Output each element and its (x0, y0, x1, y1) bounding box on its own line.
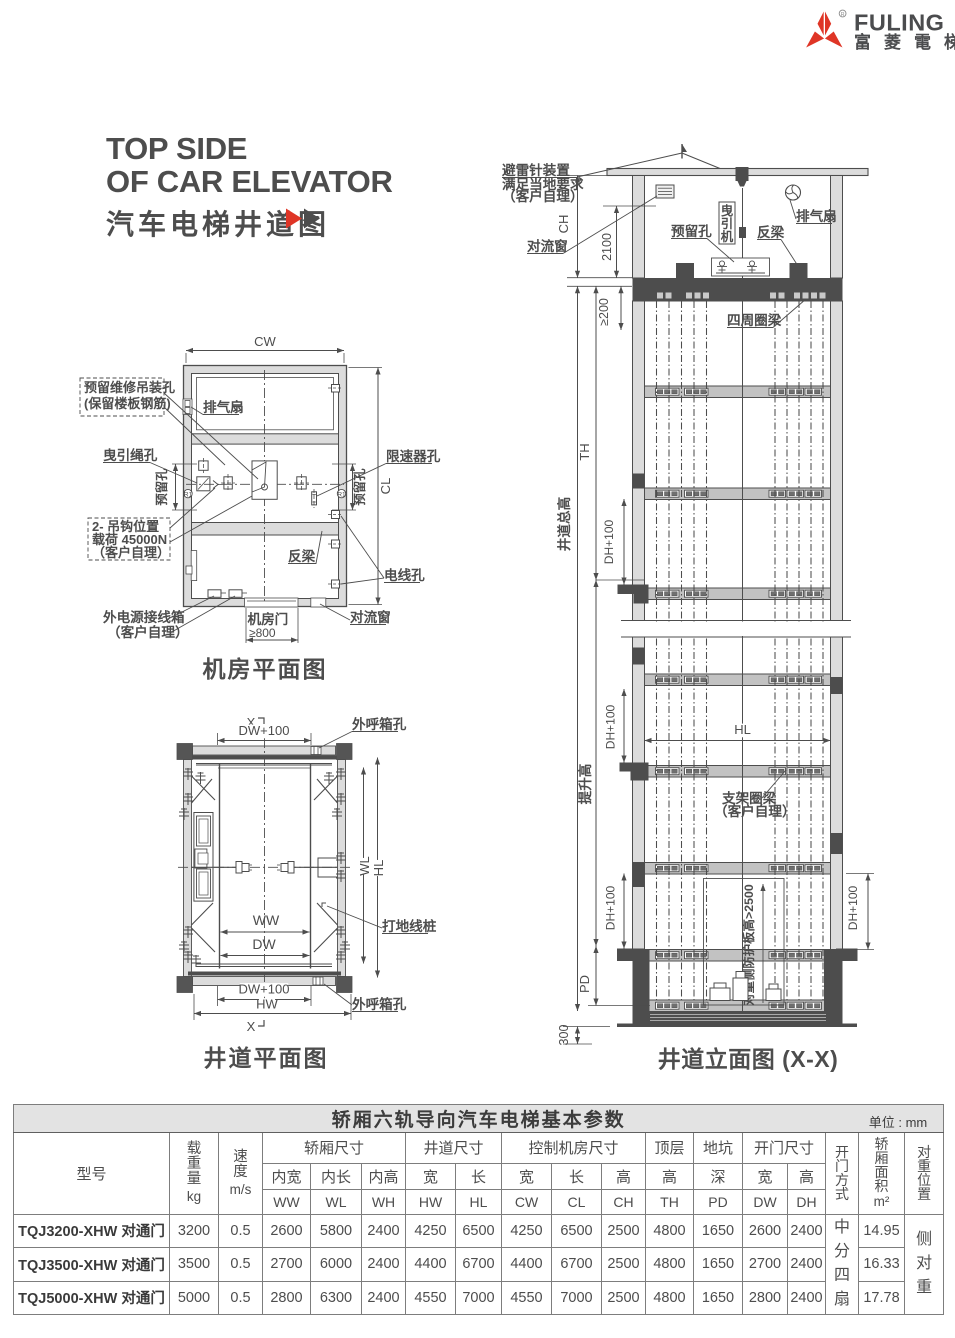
svg-text:DH+100: DH+100 (604, 886, 618, 931)
svg-text:≥200: ≥200 (597, 298, 611, 326)
svg-text:(保留楼板钢筋): (保留楼板钢筋) (84, 396, 171, 411)
svg-text:HL: HL (734, 722, 751, 737)
svg-text:对流窗: 对流窗 (527, 238, 568, 254)
svg-text:X: X (247, 1019, 256, 1034)
svg-text:井道立面图 (X-X): 井道立面图 (X-X) (658, 1046, 839, 1072)
svg-text:HL: HL (371, 860, 386, 877)
svg-text:反梁: 反梁 (757, 224, 785, 240)
svg-text:（客户自理）: （客户自理） (107, 624, 189, 640)
svg-text:提升高: 提升高 (577, 763, 593, 804)
svg-text:CL: CL (378, 478, 393, 495)
svg-text:预留孔: 预留孔 (671, 223, 712, 239)
svg-text:HW: HW (256, 997, 278, 1012)
svg-text:DW: DW (252, 936, 276, 952)
svg-text:FULING: FULING (854, 10, 944, 36)
svg-text:≥800: ≥800 (249, 626, 276, 640)
svg-text:DH+100: DH+100 (846, 886, 860, 931)
svg-text:机房门: 机房门 (248, 611, 289, 627)
svg-text:外呼箱孔: 外呼箱孔 (352, 716, 407, 732)
svg-text:曳引绳孔: 曳引绳孔 (103, 447, 158, 463)
svg-text:R: R (841, 12, 845, 18)
svg-text:排气扇: 排气扇 (203, 399, 244, 415)
svg-text:四周圈梁: 四周圈梁 (727, 312, 782, 328)
svg-text:PD: PD (577, 975, 592, 993)
svg-text:WL: WL (357, 856, 372, 876)
svg-text:（客户自理）: （客户自理） (714, 803, 796, 819)
svg-text:限速器孔: 限速器孔 (386, 448, 441, 464)
svg-text:2100: 2100 (600, 233, 614, 261)
svg-text:反梁: 反梁 (288, 548, 316, 564)
svg-text:DW+100: DW+100 (239, 723, 290, 738)
svg-text:预留维修吊装孔: 预留维修吊装孔 (84, 380, 175, 395)
svg-text:富菱電梯: 富菱電梯 (854, 32, 955, 52)
svg-text:外呼箱孔: 外呼箱孔 (352, 996, 407, 1012)
svg-text:R1: R1 (337, 491, 346, 498)
svg-text:CW: CW (254, 334, 276, 349)
svg-text:机房平面图: 机房平面图 (203, 656, 328, 682)
svg-text:DW+100: DW+100 (239, 982, 290, 997)
svg-text:300: 300 (557, 1025, 571, 1046)
svg-text:电线孔: 电线孔 (384, 567, 425, 583)
svg-text:曳: 曳 (721, 203, 734, 218)
svg-text:DH+100: DH+100 (602, 520, 616, 565)
svg-text:R1: R1 (184, 491, 193, 498)
svg-text:井道平面图: 井道平面图 (204, 1045, 329, 1071)
svg-text:TH: TH (577, 443, 592, 460)
svg-text:对流窗: 对流窗 (350, 609, 391, 625)
svg-text:井道总高: 井道总高 (556, 496, 572, 551)
svg-text:（客户自理）: （客户自理） (92, 545, 170, 560)
svg-text:打地线桩: 打地线桩 (382, 918, 437, 934)
svg-text:引: 引 (721, 217, 733, 231)
svg-text:预留孔: 预留孔 (154, 468, 169, 506)
svg-text:避雷针装置: 避雷针装置 (502, 162, 570, 178)
svg-text:（客户自理）: （客户自理） (502, 188, 584, 204)
svg-text:CH: CH (556, 215, 571, 234)
svg-text:WW: WW (253, 912, 280, 928)
svg-text:排气扇: 排气扇 (796, 208, 837, 224)
svg-text:DH+100: DH+100 (604, 705, 618, 750)
svg-text:机: 机 (721, 229, 734, 244)
